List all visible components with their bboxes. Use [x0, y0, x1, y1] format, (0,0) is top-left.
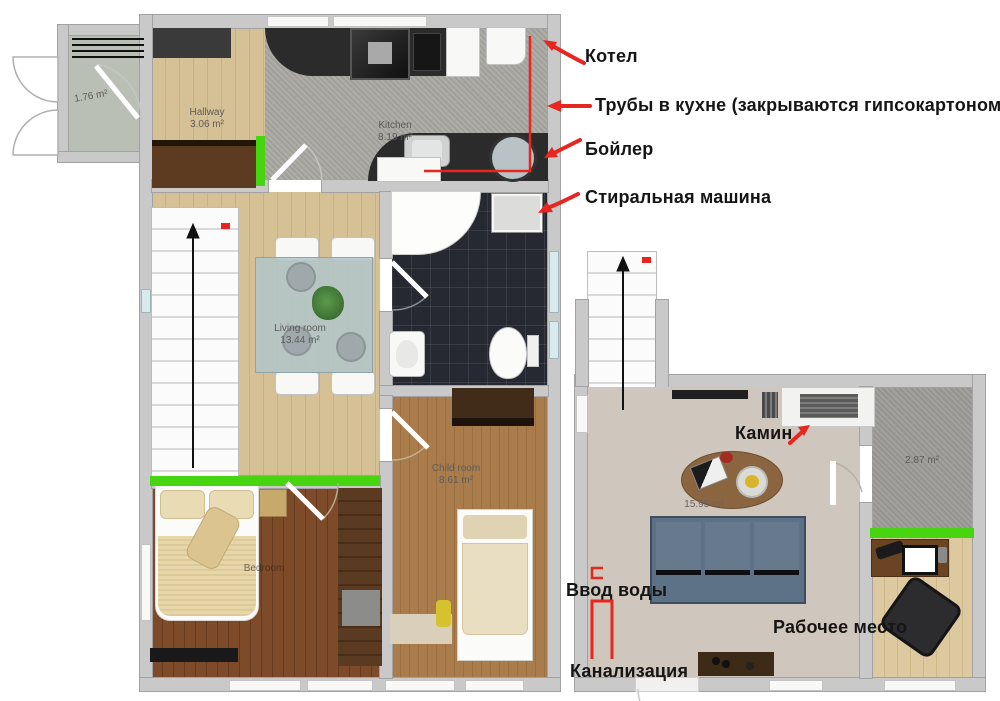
sf-stair-wall-right	[656, 300, 668, 388]
sofa-cushion-3	[754, 522, 799, 575]
window-bottom-4	[466, 681, 523, 690]
note-pipes: Трубы в кухне (закрываются гипсокартоном…	[595, 95, 1000, 116]
note-sewage: Канализация	[570, 661, 688, 682]
dining-chair-2	[332, 238, 374, 260]
doormat	[698, 652, 774, 676]
washing-machine	[492, 194, 542, 232]
sf-wall-right	[973, 375, 985, 690]
note-workplace: Рабочее место	[773, 617, 907, 638]
floor-plan-canvas: 1.76 m² Hallway 3.06 m² Kitchen 8.19 m² …	[0, 0, 1000, 701]
kitchen-cabinet-bottom	[378, 158, 440, 181]
kitchen-appliance	[414, 34, 440, 70]
bedroom-wardrobe	[338, 488, 382, 666]
child-area-label: 8.61 m²	[412, 474, 500, 487]
living-area-label: 13.44 m²	[254, 334, 346, 347]
fireplace-grille	[800, 394, 858, 418]
note-washing-machine: Стиральная машина	[585, 187, 771, 208]
porch-wall-bottom	[58, 152, 152, 162]
porch-door-swing	[13, 57, 58, 155]
note-fireplace: Камин	[735, 423, 792, 444]
wall-bath-living	[380, 192, 392, 258]
stove-burner	[368, 42, 392, 64]
sf-window-bottom-1	[770, 681, 822, 690]
sf-window-bottom-2	[885, 681, 955, 690]
child-bed-pillow	[463, 515, 527, 539]
window-right-bath2	[550, 322, 558, 358]
window-bottom-3	[386, 681, 454, 690]
dining-chair-1	[276, 238, 318, 260]
window-top-1	[268, 17, 328, 26]
child-stool	[436, 600, 451, 627]
storage-area-label: 2.87 m²	[890, 454, 954, 467]
desk-phone	[938, 547, 947, 563]
kitchen-cabinet	[487, 28, 525, 64]
bed-pillow-1	[161, 491, 204, 518]
staircase-second-floor	[588, 252, 656, 388]
sofa-cushion-2	[705, 522, 750, 575]
toilet-tank	[528, 336, 538, 366]
plate-1	[288, 264, 314, 290]
dining-chair-3	[276, 372, 318, 394]
toilet-bowl	[490, 328, 526, 378]
bedroom-name-label: Bedroom	[228, 562, 300, 575]
child-bed-blanket	[463, 544, 527, 634]
fridge	[447, 28, 479, 76]
desk-monitor	[902, 545, 938, 575]
sf-bookshelf	[762, 392, 778, 418]
note-water-inlet: Ввод воды	[566, 580, 667, 601]
sofa-cushion-1	[656, 522, 701, 575]
window-bottom-2	[308, 681, 372, 690]
nightstand	[260, 490, 286, 516]
staircase-first-floor	[152, 208, 238, 480]
hallway-sideboard	[152, 140, 256, 188]
window-left-bedroom	[142, 545, 150, 620]
sf-window-left	[577, 396, 587, 432]
bathroom-sink-basin	[396, 340, 418, 368]
sf-wall-left	[575, 387, 587, 690]
shoes-on-mat	[712, 657, 720, 665]
sf-shelf-strip	[672, 390, 748, 399]
hallway-area-label: 3.06 m²	[164, 118, 250, 131]
note-boiler-top: Котел	[585, 46, 638, 67]
hallway-wardrobe	[153, 28, 231, 58]
window-right-bath	[550, 252, 558, 312]
child-wardrobe	[452, 388, 534, 426]
fruit	[745, 475, 759, 488]
radiator	[72, 38, 144, 58]
kitchen-area-label: 8.19 m²	[350, 131, 440, 144]
wall-living-child	[380, 396, 392, 408]
sf-wall-highlight	[870, 528, 974, 538]
tv-bench	[150, 648, 238, 662]
water-heater-tank	[492, 137, 534, 179]
dining-chair-4	[332, 372, 374, 394]
table-deco	[720, 452, 733, 463]
sf-stair-wall-left	[576, 300, 588, 388]
hallway-door-highlight	[256, 136, 265, 186]
window-top-2	[334, 17, 426, 26]
upstairs-area-label: 15.95 m²	[672, 498, 736, 511]
table-plant	[312, 286, 344, 320]
wall-mid-right	[322, 180, 548, 192]
porch-wall-top	[58, 25, 152, 35]
window-left-living	[142, 290, 150, 312]
bedroom-wardrobe-gray	[342, 590, 380, 626]
bedroom-wall-highlight	[150, 476, 380, 486]
note-water-heater: Бойлер	[585, 139, 653, 160]
window-bottom-1	[230, 681, 300, 690]
